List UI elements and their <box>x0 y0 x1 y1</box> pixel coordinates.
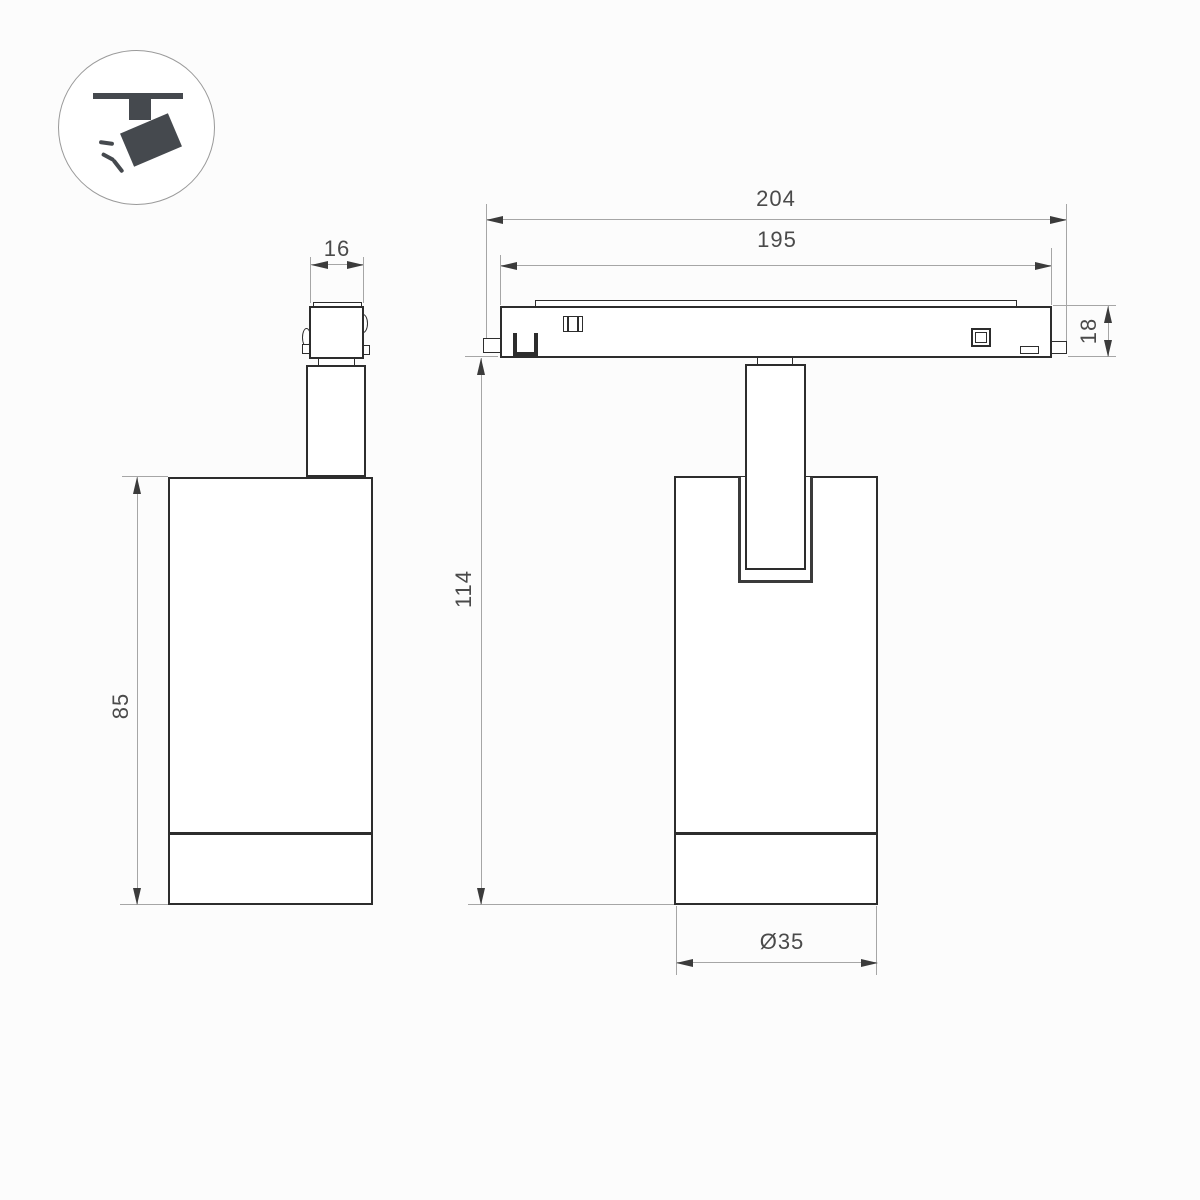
extension-line <box>1051 248 1052 305</box>
arrowhead <box>1104 306 1112 323</box>
arrowhead <box>133 888 141 905</box>
track-square-clip <box>971 328 991 347</box>
dim-body-diameter-label: Ø35 <box>742 932 822 952</box>
dim-line <box>500 265 1051 266</box>
dim-line <box>481 358 482 905</box>
dim-line <box>486 219 1066 220</box>
arrowhead <box>347 261 364 269</box>
track-square-clip <box>563 316 583 332</box>
dim-track-inner-label: 195 <box>746 230 808 250</box>
extension-line <box>122 476 168 477</box>
arrowhead <box>311 261 328 269</box>
product-icon <box>58 50 215 205</box>
body-trim-ring <box>169 832 372 835</box>
spotlight-head-icon <box>120 113 182 166</box>
extension-line <box>465 356 498 357</box>
arrowhead <box>486 216 503 224</box>
clip-detail-line <box>567 317 569 331</box>
extension-line <box>468 904 675 905</box>
dim-adapter-width-label: 16 <box>312 239 362 259</box>
dim-track-height-label: 18 <box>1079 311 1099 351</box>
extension-line <box>500 255 501 305</box>
stem <box>745 364 806 570</box>
dim-body-height-label: 85 <box>111 681 131 731</box>
arrowhead <box>477 888 485 905</box>
arrowhead <box>500 262 517 270</box>
arrowhead <box>676 959 693 967</box>
arrowhead <box>1050 216 1067 224</box>
lamp-body <box>168 477 373 905</box>
icon-stem <box>129 98 151 120</box>
extension-line <box>363 257 364 303</box>
arrowhead <box>1035 262 1052 270</box>
arrowhead <box>861 959 878 967</box>
dim-line <box>137 477 138 905</box>
arrowhead <box>1104 340 1112 357</box>
dim-line <box>676 962 877 963</box>
clip-detail-line <box>577 317 579 331</box>
technical-drawing-sheet: 16 85 204 195 <box>0 0 1200 1200</box>
dim-track-overall-label: 204 <box>745 189 807 209</box>
light-ray-icon <box>111 158 124 173</box>
track-slot-detail <box>1020 346 1039 354</box>
extension-line <box>1066 204 1067 342</box>
clip-inner-frame <box>975 332 987 343</box>
stem <box>306 365 366 477</box>
extension-line <box>310 257 311 303</box>
track-end-tab <box>483 338 501 353</box>
extension-line <box>486 204 487 342</box>
track-end-tab <box>1051 341 1067 354</box>
extension-line <box>120 904 168 905</box>
body-trim-ring <box>675 832 877 835</box>
track-u-clip <box>513 333 538 356</box>
light-ray-icon <box>99 140 114 146</box>
dim-total-height-label: 114 <box>454 561 474 617</box>
arrowhead <box>133 477 141 494</box>
arrowhead <box>477 358 485 375</box>
track-body <box>500 306 1052 358</box>
track-adapter <box>309 306 364 359</box>
